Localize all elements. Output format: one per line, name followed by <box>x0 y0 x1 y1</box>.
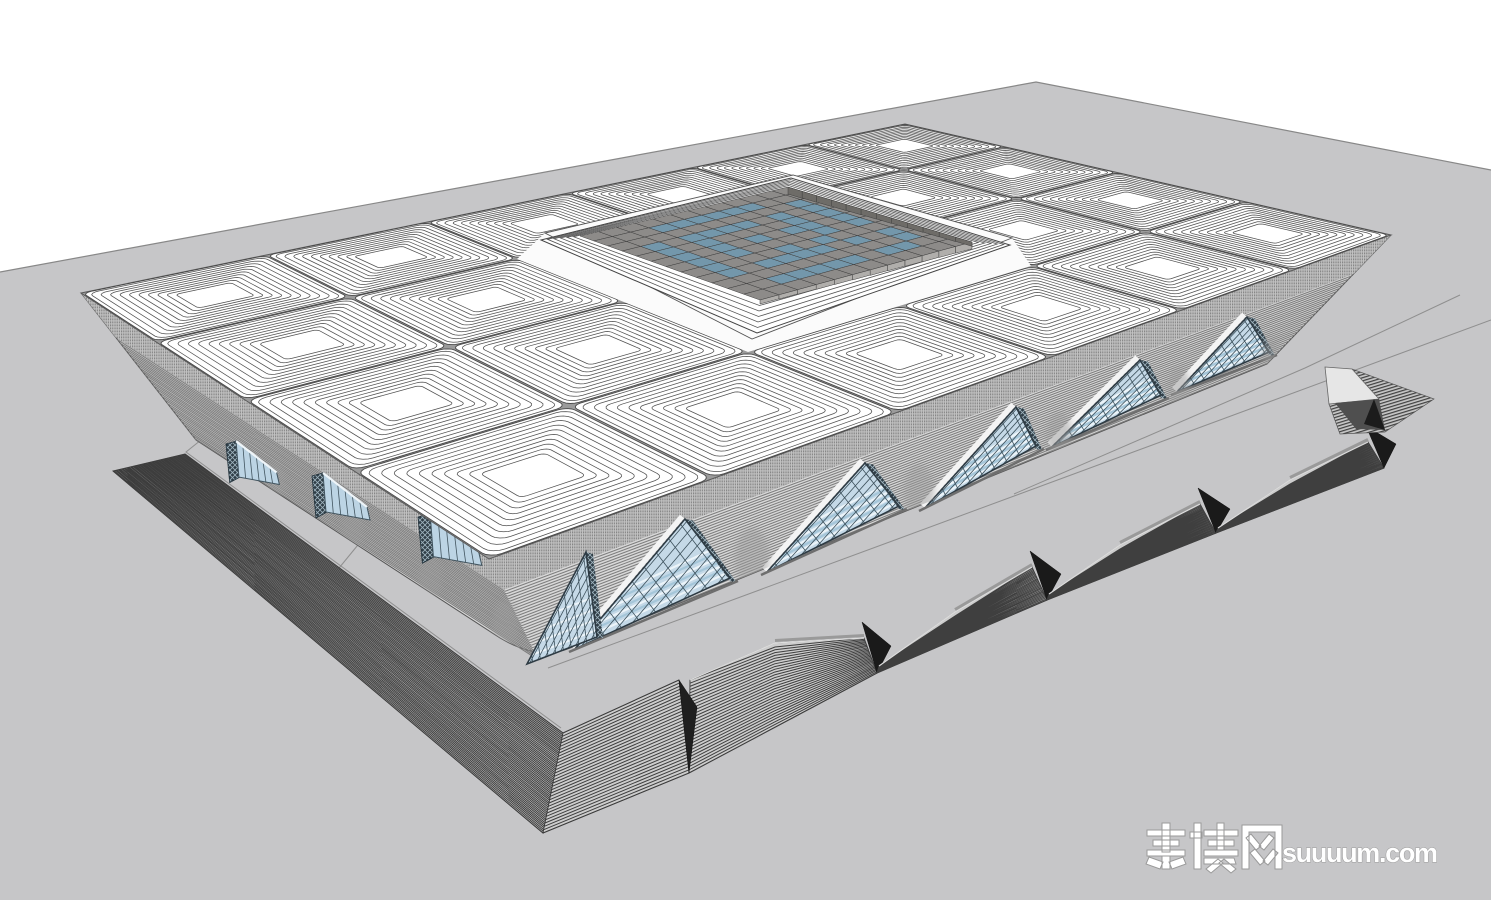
svg-text:suuuum.com: suuuum.com <box>1282 838 1438 868</box>
